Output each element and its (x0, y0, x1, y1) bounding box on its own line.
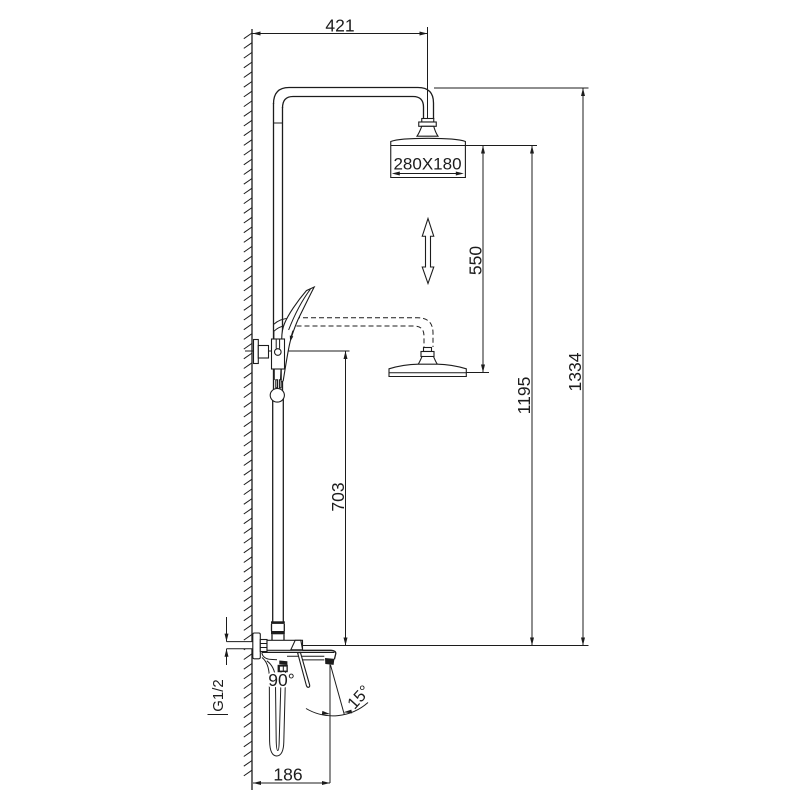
svg-text:90°: 90° (268, 670, 294, 690)
svg-text:G1/2: G1/2 (210, 679, 227, 712)
svg-text:550: 550 (466, 246, 486, 275)
svg-text:1334: 1334 (565, 352, 585, 391)
svg-text:703: 703 (328, 482, 348, 511)
svg-text:280X180: 280X180 (393, 155, 461, 174)
svg-text:421: 421 (325, 16, 354, 36)
svg-text:1195: 1195 (514, 377, 534, 415)
svg-text:186: 186 (273, 765, 302, 785)
